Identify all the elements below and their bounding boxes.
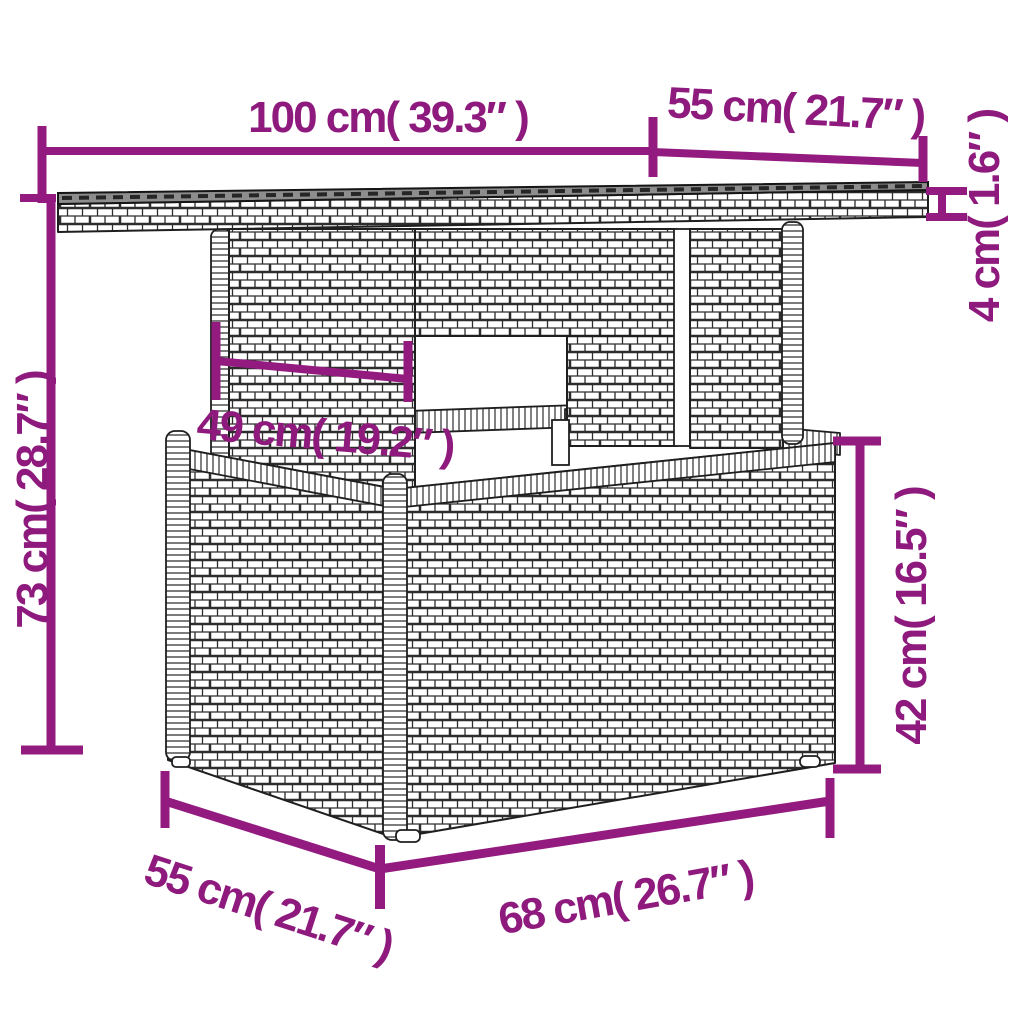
base-back-left-post bbox=[166, 431, 190, 761]
base-foot-front bbox=[396, 830, 420, 842]
dim-base-width-label: 68 cm( 26.7″ ) bbox=[495, 851, 757, 944]
apron-panel bbox=[415, 229, 677, 336]
base-left-face bbox=[168, 446, 395, 838]
right-column bbox=[690, 229, 783, 448]
storage-base bbox=[166, 431, 835, 842]
small-support-post bbox=[552, 420, 569, 465]
dim-top-width-label: 100 cm( 39.3″ ) bbox=[248, 93, 528, 142]
dimension-top-thickness: 4 cm( 1.6″ ) bbox=[926, 110, 1009, 323]
dim-top-depth-label: 55 cm( 21.7″ ) bbox=[666, 78, 926, 140]
right-support-post bbox=[674, 229, 690, 446]
product-dimension-diagram: 100 cm( 39.3″ ) 55 cm( 21.7″ ) 4 cm( 1.6… bbox=[0, 0, 1024, 1024]
table-illustration bbox=[58, 182, 928, 842]
base-foot-left bbox=[172, 757, 190, 767]
dimension-total-height: 73 cm( 28.7″ ) bbox=[8, 197, 83, 751]
dimension-base-height: 42 cm( 16.5″ ) bbox=[833, 441, 936, 769]
dim-total-height-label: 73 cm( 28.7″ ) bbox=[8, 371, 57, 629]
base-right-face bbox=[395, 443, 835, 838]
diagram-canvas: 100 cm( 39.3″ ) 55 cm( 21.7″ ) 4 cm( 1.6… bbox=[0, 0, 1024, 1024]
base-foot-right bbox=[800, 756, 820, 767]
middle-lower-panel bbox=[567, 336, 677, 446]
dim-base-height-label: 42 cm( 16.5″ ) bbox=[887, 487, 936, 745]
right-column-edge-tube bbox=[782, 222, 803, 444]
dimension-top-depth: 55 cm( 21.7″ ) bbox=[653, 78, 926, 182]
dim-top-thickness-label: 4 cm( 1.6″ ) bbox=[960, 110, 1009, 323]
base-front-post bbox=[383, 474, 407, 840]
